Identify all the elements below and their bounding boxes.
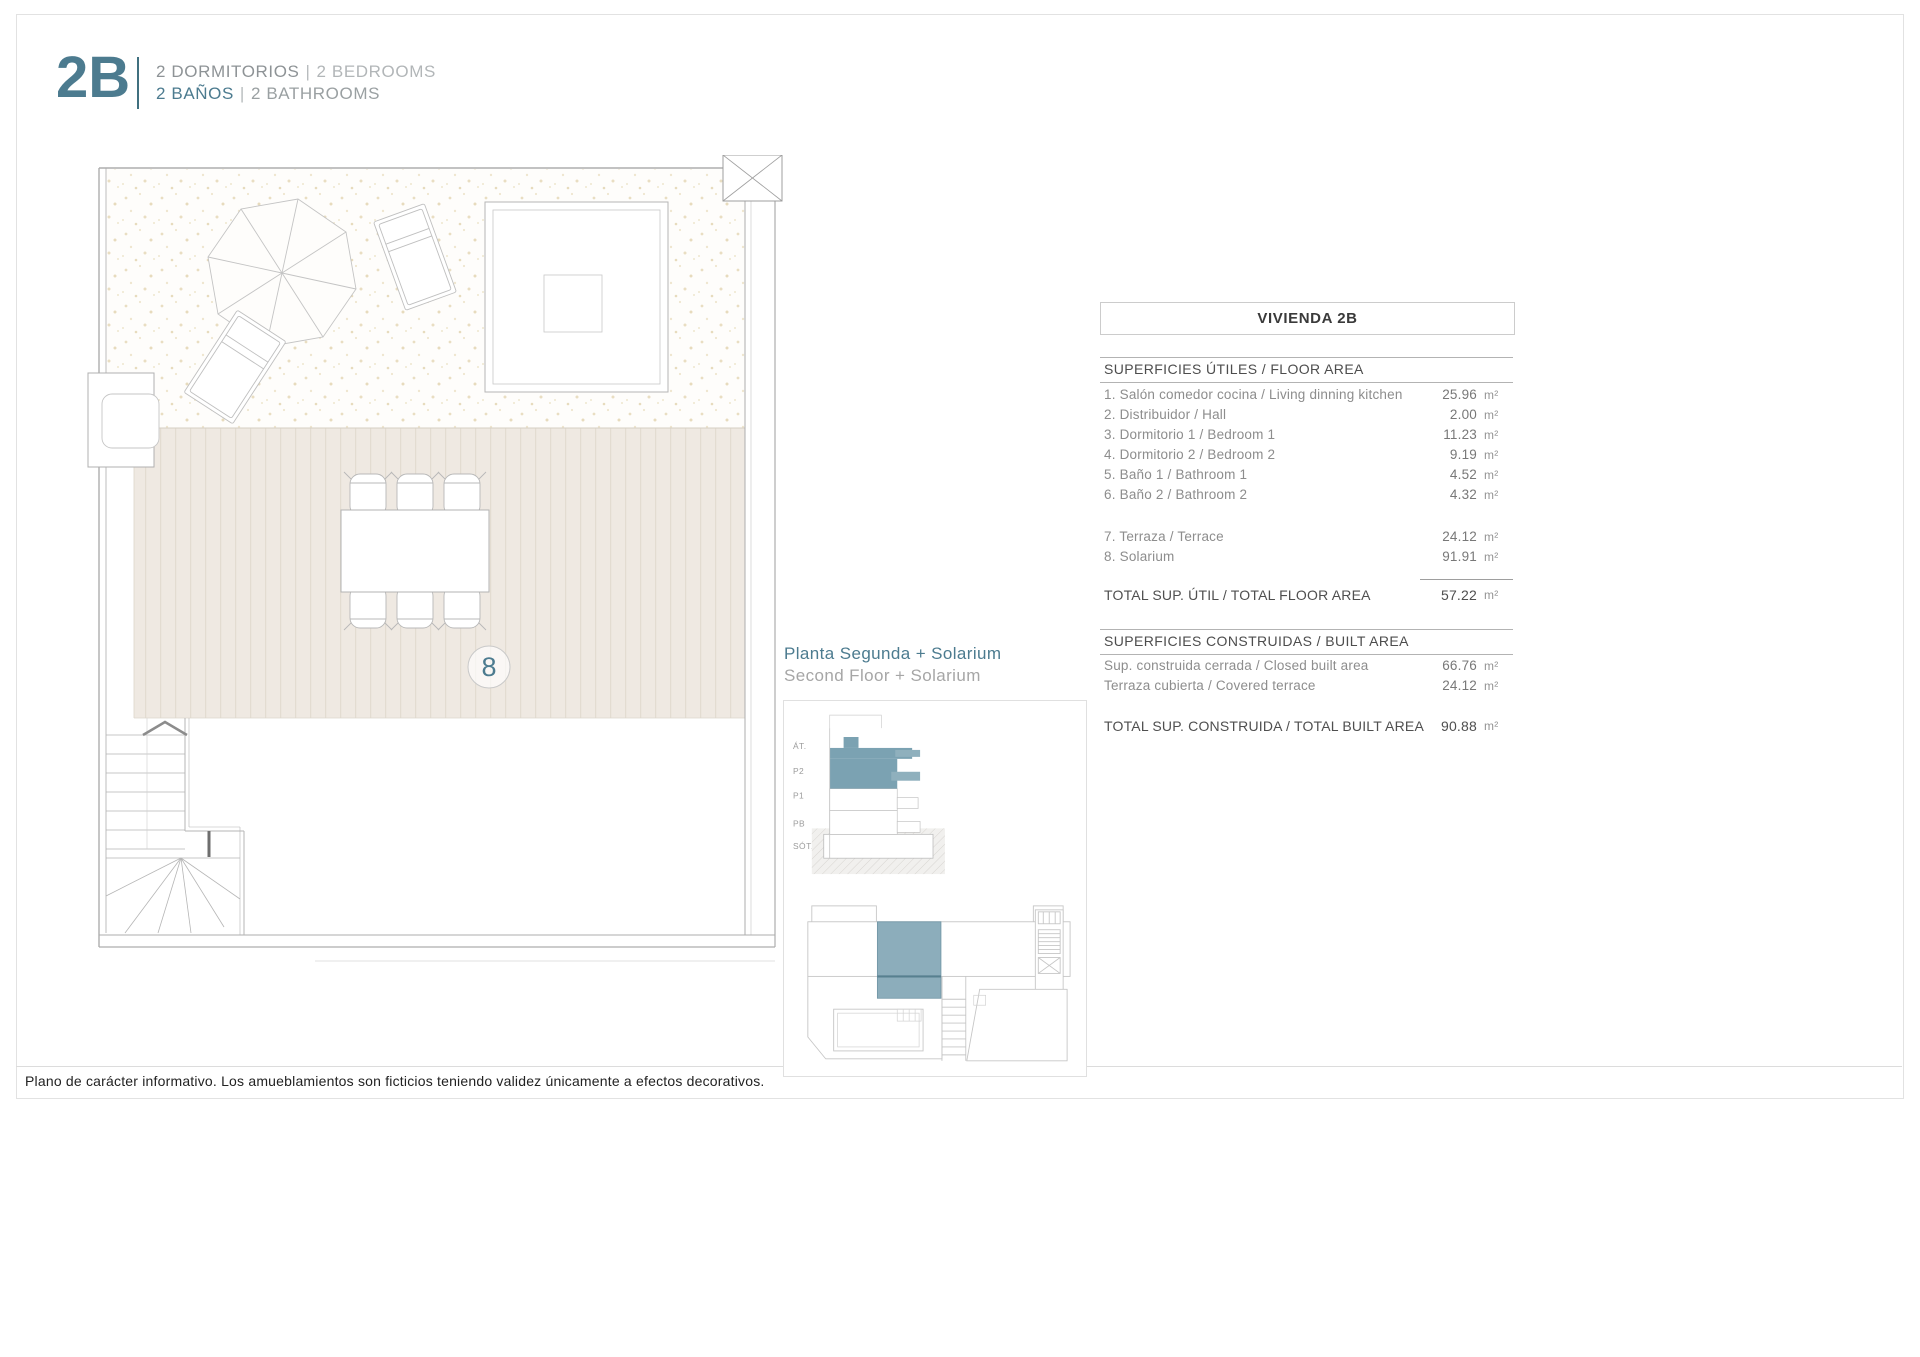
planter bbox=[88, 373, 159, 467]
section-line bbox=[1100, 357, 1513, 358]
row-value: 11.23 bbox=[1443, 427, 1477, 442]
section-line bbox=[1100, 382, 1513, 383]
bathrooms-en: 2 BATHROOMS bbox=[251, 84, 380, 103]
stairs-direction-arrow bbox=[143, 722, 187, 735]
row-label: 6. Baño 2 / Bathroom 2 bbox=[1104, 487, 1247, 502]
row-unit: m² bbox=[1484, 448, 1498, 462]
row-unit: m² bbox=[1484, 428, 1498, 442]
staircase bbox=[106, 718, 244, 935]
dining-table bbox=[341, 510, 489, 592]
total-label: TOTAL SUP. ÚTIL / TOTAL FLOOR AREA bbox=[1104, 587, 1371, 603]
table-row: 8. Solarium 91.91 m² bbox=[1100, 549, 1513, 569]
table-row: Sup. construida cerrada / Closed built a… bbox=[1100, 658, 1513, 678]
row-value: 66.76 bbox=[1442, 658, 1477, 673]
row-unit: m² bbox=[1484, 530, 1498, 544]
row-value: 9.19 bbox=[1450, 447, 1477, 462]
total-overline bbox=[1420, 579, 1513, 580]
header-bathrooms-line: 2 BAÑOS|2 BATHROOMS bbox=[156, 84, 380, 104]
row-unit: m² bbox=[1484, 679, 1498, 693]
row-value: 24.12 bbox=[1442, 529, 1477, 544]
key-diagram-box: ÁT. P2 P1 PB SÓT. bbox=[783, 700, 1087, 1077]
table-row: 5. Baño 1 / Bathroom 1 4.52 m² bbox=[1100, 467, 1513, 487]
total-label: TOTAL SUP. CONSTRUIDA / TOTAL BUILT AREA bbox=[1104, 718, 1424, 734]
row-value: 91.91 bbox=[1442, 549, 1477, 564]
dining-chairs-bottom bbox=[344, 586, 486, 630]
header-bedrooms-line: 2 DORMITORIOS|2 BEDROOMS bbox=[156, 62, 436, 82]
zone-circle: 8 bbox=[468, 646, 510, 688]
table-row: 2. Distribuidor / Hall 2.00 m² bbox=[1100, 407, 1513, 427]
skylight bbox=[485, 202, 668, 392]
built-area-header: SUPERFICIES CONSTRUIDAS / BUILT AREA bbox=[1104, 633, 1409, 649]
highlighted-unit bbox=[877, 922, 941, 998]
bedrooms-es: 2 DORMITORIOS bbox=[156, 62, 300, 81]
table-row: 3. Dormitorio 1 / Bedroom 1 11.23 m² bbox=[1100, 427, 1513, 447]
row-label: Terraza cubierta / Covered terrace bbox=[1104, 678, 1316, 693]
level-label-pb: PB bbox=[793, 818, 805, 828]
row-unit: m² bbox=[1484, 550, 1498, 564]
dining-chairs-top bbox=[344, 472, 486, 516]
zone-number: 8 bbox=[481, 652, 496, 682]
table-row: 4. Dormitorio 2 / Bedroom 2 9.19 m² bbox=[1100, 447, 1513, 467]
table-row: 1. Salón comedor cocina / Living dinning… bbox=[1100, 387, 1513, 407]
area-table-panel: VIVIENDA 2B SUPERFICIES ÚTILES / FLOOR A… bbox=[1100, 302, 1515, 772]
row-label: 8. Solarium bbox=[1104, 549, 1174, 564]
table-row: 6. Baño 2 / Bathroom 2 4.32 m² bbox=[1100, 487, 1513, 507]
total-built-area-row: TOTAL SUP. CONSTRUIDA / TOTAL BUILT AREA… bbox=[1100, 718, 1513, 738]
floor-title-es: Planta Segunda + Solarium bbox=[784, 644, 1001, 664]
level-label-sotano: SÓT. bbox=[793, 841, 814, 851]
row-label: 3. Dormitorio 1 / Bedroom 1 bbox=[1104, 427, 1275, 442]
section-line bbox=[1100, 654, 1513, 655]
row-label: 2. Distribuidor / Hall bbox=[1104, 407, 1226, 422]
header-divider bbox=[137, 57, 139, 109]
level-label-p2: P2 bbox=[793, 766, 804, 776]
disclaimer-text: Plano de carácter informativo. Los amueb… bbox=[25, 1073, 765, 1089]
level-label-atico: ÁT. bbox=[793, 741, 807, 751]
row-unit: m² bbox=[1484, 408, 1498, 422]
shaft-x-symbol bbox=[723, 155, 782, 201]
key-diagram-drawing: ÁT. P2 P1 PB SÓT. bbox=[784, 701, 1084, 1074]
highlighted-floors bbox=[830, 737, 920, 789]
table-title: VIVIENDA 2B bbox=[1100, 302, 1515, 335]
level-label-p1: P1 bbox=[793, 791, 804, 801]
row-label: 5. Baño 1 / Bathroom 1 bbox=[1104, 467, 1247, 482]
row-value: 24.12 bbox=[1442, 678, 1477, 693]
row-label: 1. Salón comedor cocina / Living dinning… bbox=[1104, 387, 1403, 402]
floor-plan-drawing: 8 bbox=[85, 155, 785, 965]
table-row: Terraza cubierta / Covered terrace 24.12… bbox=[1100, 678, 1513, 698]
row-value: 4.52 bbox=[1450, 467, 1477, 482]
site-key-plan bbox=[808, 906, 1070, 1061]
row-label: Sup. construida cerrada / Closed built a… bbox=[1104, 658, 1369, 673]
row-label: 4. Dormitorio 2 / Bedroom 2 bbox=[1104, 447, 1275, 462]
section-line bbox=[1100, 629, 1513, 630]
row-unit: m² bbox=[1484, 388, 1498, 402]
row-value: 25.96 bbox=[1442, 387, 1477, 402]
separator: | bbox=[234, 84, 251, 103]
table-row: 7. Terraza / Terrace 24.12 m² bbox=[1100, 529, 1513, 549]
row-label: 7. Terraza / Terrace bbox=[1104, 529, 1224, 544]
separator: | bbox=[300, 62, 317, 81]
row-value: 2.00 bbox=[1450, 407, 1477, 422]
floor-area-header: SUPERFICIES ÚTILES / FLOOR AREA bbox=[1104, 361, 1364, 377]
building-section-diagram: ÁT. P2 P1 PB SÓT. bbox=[793, 715, 945, 874]
floor-title-en: Second Floor + Solarium bbox=[784, 666, 981, 686]
bedrooms-en: 2 BEDROOMS bbox=[317, 62, 436, 81]
row-unit: m² bbox=[1484, 468, 1498, 482]
total-unit: m² bbox=[1484, 719, 1498, 733]
unit-code: 2B bbox=[56, 44, 130, 111]
total-value: 90.88 bbox=[1441, 718, 1477, 734]
total-floor-area-row: TOTAL SUP. ÚTIL / TOTAL FLOOR AREA 57.22… bbox=[1100, 587, 1513, 607]
row-unit: m² bbox=[1484, 659, 1498, 673]
bathrooms-es: 2 BAÑOS bbox=[156, 84, 234, 103]
row-value: 4.32 bbox=[1450, 487, 1477, 502]
total-value: 57.22 bbox=[1441, 587, 1477, 603]
total-unit: m² bbox=[1484, 588, 1498, 602]
row-unit: m² bbox=[1484, 488, 1498, 502]
